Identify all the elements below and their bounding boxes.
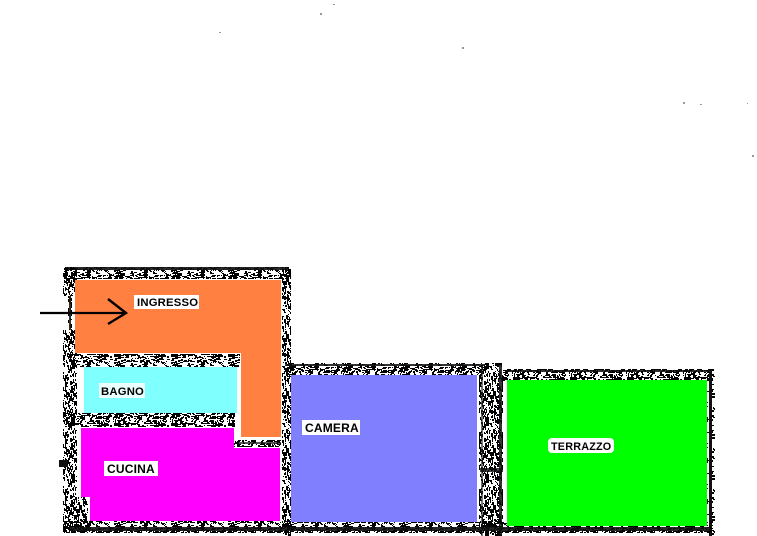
svg-text:INGRESSO: INGRESSO	[137, 297, 198, 309]
svg-text:BAGNO: BAGNO	[101, 386, 144, 398]
svg-text:CAMERA: CAMERA	[305, 421, 359, 435]
svg-text:TERRAZZO: TERRAZZO	[551, 441, 611, 453]
svg-text:CUCINA: CUCINA	[107, 462, 155, 476]
